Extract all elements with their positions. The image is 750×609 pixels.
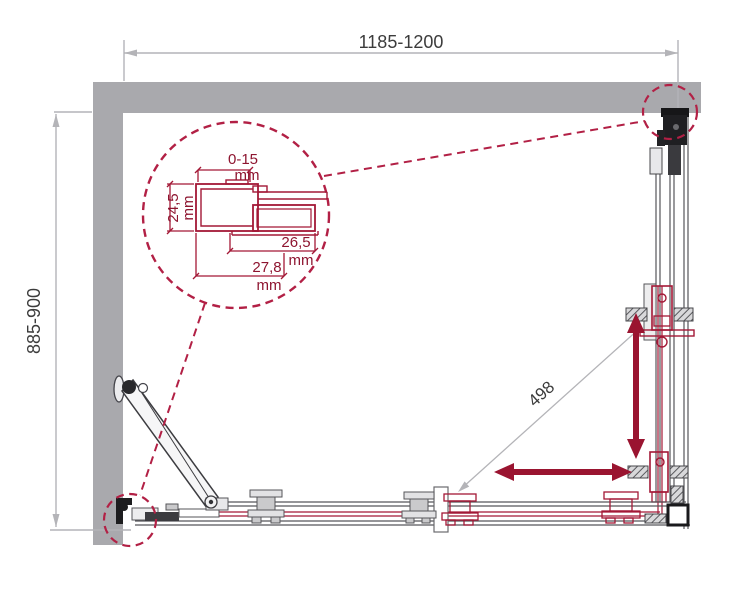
installation-diagram: 1185-1200 885-900: [0, 0, 750, 609]
profile-depth-unit-label: mm: [180, 196, 197, 221]
top-rail-bracket: [650, 108, 689, 175]
wall-left: [93, 113, 123, 545]
diagram-canvas: 1185-1200 885-900: [0, 0, 750, 609]
bottom-roller-right: [602, 492, 640, 523]
leader-to-top-right: [324, 121, 645, 176]
dim-arrow-left: [124, 50, 137, 57]
profile-cross-section: [196, 180, 327, 235]
arm-wall-pivot: [122, 380, 136, 394]
wall-top: [93, 82, 701, 113]
adjustment-value-label: 0-15: [228, 151, 258, 168]
adjustment-arrow-vertical: [627, 313, 645, 459]
inner-width-unit-label: mm: [289, 252, 314, 269]
outer-width-unit-label: mm: [257, 277, 282, 294]
inner-width-value-label: 26,5: [281, 234, 310, 251]
depth-dimension-label: 885-900: [24, 288, 44, 354]
dim-arrow-down: [53, 514, 60, 527]
outer-width-value-label: 27,8: [252, 259, 281, 276]
adjustment-unit-label: mm: [235, 167, 260, 184]
width-dimension-label: 1185-1200: [359, 32, 444, 52]
dim-arrow-right: [665, 50, 678, 57]
adjustment-arrow-horizontal: [494, 463, 632, 481]
dim-arrow-up: [53, 114, 60, 127]
support-arm: [114, 376, 228, 510]
